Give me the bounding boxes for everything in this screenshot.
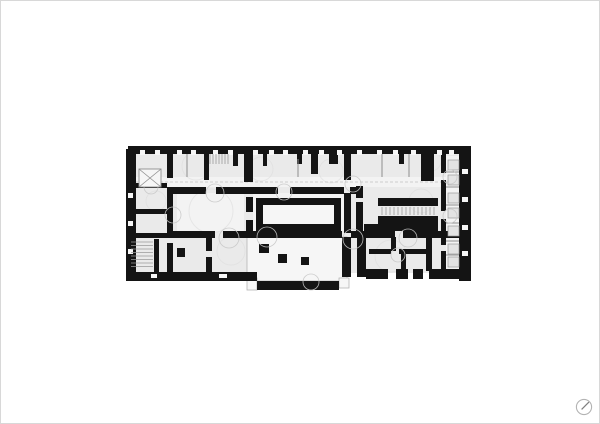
wall xyxy=(126,149,136,281)
wall xyxy=(344,193,351,233)
wall xyxy=(441,154,446,173)
wall xyxy=(350,187,363,194)
opening xyxy=(337,150,342,155)
wall xyxy=(233,154,238,166)
opening xyxy=(303,150,308,155)
wall xyxy=(366,269,388,279)
wall xyxy=(177,248,185,257)
opening xyxy=(462,197,468,202)
wall xyxy=(399,154,404,164)
wall xyxy=(378,216,438,224)
opening xyxy=(128,221,133,226)
opening xyxy=(140,150,145,155)
compass-needle xyxy=(582,402,589,409)
opening xyxy=(213,150,218,155)
terrace-room xyxy=(339,278,349,288)
wall xyxy=(206,257,212,272)
opening xyxy=(437,150,442,155)
bathroom-fixture xyxy=(448,244,459,254)
wall xyxy=(426,237,432,271)
opening xyxy=(411,150,416,155)
bathroom-fixture xyxy=(448,257,459,267)
wall xyxy=(167,154,173,178)
drawing-page xyxy=(0,0,600,424)
opening xyxy=(128,249,133,254)
opening xyxy=(228,150,233,155)
opening xyxy=(462,251,468,256)
opening xyxy=(319,150,324,155)
opening xyxy=(263,205,334,224)
wall xyxy=(441,180,446,211)
wall xyxy=(459,146,471,281)
wall xyxy=(421,154,434,181)
room-area xyxy=(177,193,244,231)
opening xyxy=(269,150,274,155)
wall xyxy=(136,209,167,214)
opening xyxy=(449,150,454,155)
wall xyxy=(356,202,363,233)
wall xyxy=(369,249,391,254)
wall xyxy=(413,269,423,279)
compass-icon[interactable] xyxy=(575,398,593,416)
wall xyxy=(246,197,253,212)
wall xyxy=(126,272,257,281)
wall xyxy=(246,220,253,233)
opening xyxy=(462,225,468,230)
wall xyxy=(378,198,438,206)
wall xyxy=(204,154,209,180)
wall xyxy=(167,231,215,238)
opening xyxy=(377,150,382,155)
wall xyxy=(244,151,253,182)
wall xyxy=(216,187,278,194)
bathroom-fixture xyxy=(448,193,459,203)
opening xyxy=(357,150,362,155)
wall xyxy=(167,243,173,272)
wall xyxy=(364,224,390,233)
wall xyxy=(290,187,344,194)
wall xyxy=(389,224,438,231)
wall xyxy=(154,239,159,272)
wall xyxy=(342,237,351,277)
wall xyxy=(429,269,459,279)
opening xyxy=(128,193,133,198)
wall xyxy=(132,233,167,238)
opening xyxy=(177,150,182,155)
opening xyxy=(462,169,468,174)
opening xyxy=(151,274,157,278)
opening xyxy=(283,150,288,155)
wall xyxy=(173,187,206,194)
wall xyxy=(206,238,212,251)
wall xyxy=(223,231,342,238)
bathroom-fixture xyxy=(448,160,459,170)
bathroom-fixture xyxy=(448,226,459,236)
wall xyxy=(329,149,338,164)
opening xyxy=(219,274,227,278)
terrace-room xyxy=(247,237,347,281)
wall xyxy=(344,154,351,180)
opening xyxy=(155,150,160,155)
wall xyxy=(311,154,318,174)
opening xyxy=(191,150,196,155)
wall xyxy=(257,281,339,290)
column xyxy=(301,257,309,265)
opening xyxy=(253,150,258,155)
wall xyxy=(357,237,366,277)
wall xyxy=(167,187,173,233)
column xyxy=(278,254,287,263)
wall xyxy=(441,251,446,269)
floor-plan xyxy=(1,1,600,424)
opening xyxy=(393,150,398,155)
wall xyxy=(263,154,267,166)
wall xyxy=(259,244,269,253)
